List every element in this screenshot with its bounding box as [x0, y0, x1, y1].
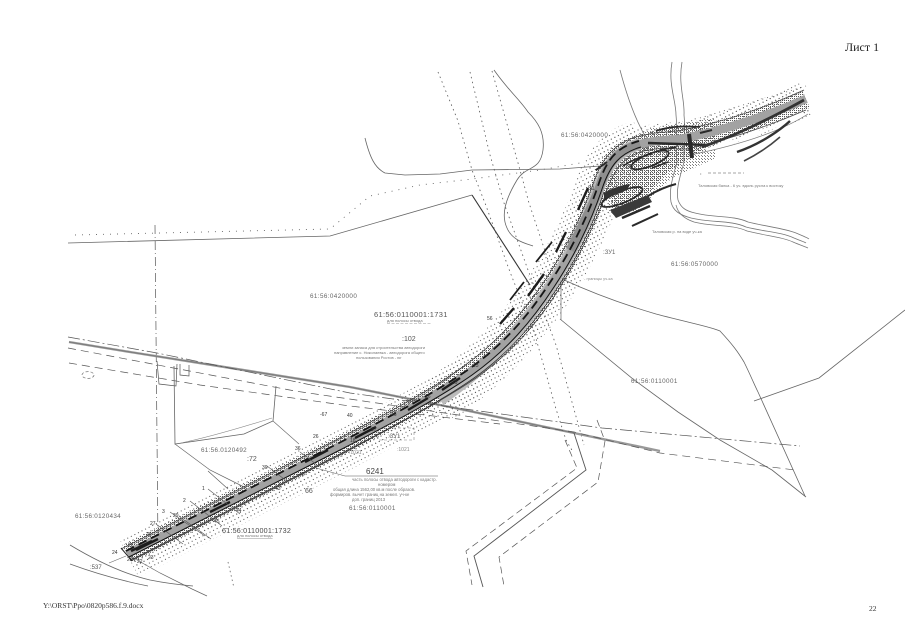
svg-text:42: 42	[299, 472, 305, 478]
svg-text:24: 24	[112, 550, 118, 556]
svg-text:Таловская р. на воде уч-ка: Таловская р. на воде уч-ка	[652, 229, 703, 234]
svg-text:13: 13	[473, 363, 479, 369]
svg-text:6241: 6241	[366, 467, 384, 476]
svg-text:- границы уч-ка: - границы уч-ка	[584, 276, 613, 281]
svg-text::1021: :1021	[397, 447, 410, 453]
svg-text:61:56:0420000: 61:56:0420000	[310, 293, 357, 300]
svg-text::72: :72	[247, 456, 257, 463]
svg-text:12: 12	[483, 352, 489, 358]
svg-text:3: 3	[162, 509, 165, 515]
svg-text:17: 17	[371, 427, 377, 433]
svg-text:2: 2	[183, 498, 186, 504]
svg-text:1: 1	[202, 486, 205, 492]
svg-text:23: 23	[148, 555, 154, 561]
svg-text:25: 25	[128, 543, 134, 549]
svg-text:для полосы отвода: для полосы отвода	[387, 318, 423, 323]
svg-text:36: 36	[295, 446, 301, 452]
svg-text:61:56:0120434: 61:56:0120434	[75, 513, 121, 520]
svg-text:22: 22	[137, 559, 143, 565]
svg-text:19: 19	[452, 380, 458, 386]
svg-text:66: 66	[305, 488, 313, 495]
svg-text::1021: :1021	[349, 450, 362, 456]
svg-text:16: 16	[425, 394, 431, 400]
svg-text:61:56:0420000: 61:56:0420000	[561, 132, 608, 139]
svg-text::ЗУ1: :ЗУ1	[388, 434, 401, 440]
svg-text:53: 53	[643, 147, 649, 153]
svg-text::ЗУ1: :ЗУ1	[603, 250, 616, 256]
svg-text:46: 46	[391, 412, 397, 418]
svg-text:43: 43	[275, 486, 281, 492]
svg-text::102: :102	[402, 336, 416, 343]
svg-text:Y:\ORST\Ppo\0820p586.f.9.docx: Y:\ORST\Ppo\0820p586.f.9.docx	[43, 601, 144, 610]
svg-text:61:56:0110001: 61:56:0110001	[631, 378, 678, 385]
svg-text:пользования Ростов - юг: пользования Ростов - юг	[356, 355, 402, 360]
svg-text:18: 18	[350, 438, 356, 444]
svg-text:для полосы отвода: для полосы отвода	[237, 533, 273, 538]
svg-text:61:56:0110001: 61:56:0110001	[349, 505, 396, 512]
svg-text:61:56.0120492: 61:56.0120492	[201, 447, 247, 454]
svg-text:27: 27	[150, 521, 156, 527]
svg-text:26: 26	[146, 532, 152, 538]
svg-text::537: :537	[90, 565, 102, 571]
svg-text:30: 30	[262, 465, 268, 471]
svg-text:40: 40	[347, 413, 353, 419]
svg-text:Лист 1: Лист 1	[845, 40, 879, 54]
svg-text:-67: -67	[320, 412, 327, 418]
svg-text:26: 26	[313, 434, 319, 440]
svg-text:22: 22	[869, 604, 877, 613]
svg-text:61:56:0570000: 61:56:0570000	[671, 261, 718, 268]
svg-text:56: 56	[487, 316, 493, 322]
svg-text:доп. границ 2013: доп. границ 2013	[352, 497, 386, 502]
svg-text:Таловская балка - 6 уч. вдоль: Таловская балка - 6 уч. вдоль русла к во…	[698, 183, 783, 188]
svg-text:51: 51	[588, 186, 595, 192]
svg-text:52: 52	[626, 164, 632, 170]
